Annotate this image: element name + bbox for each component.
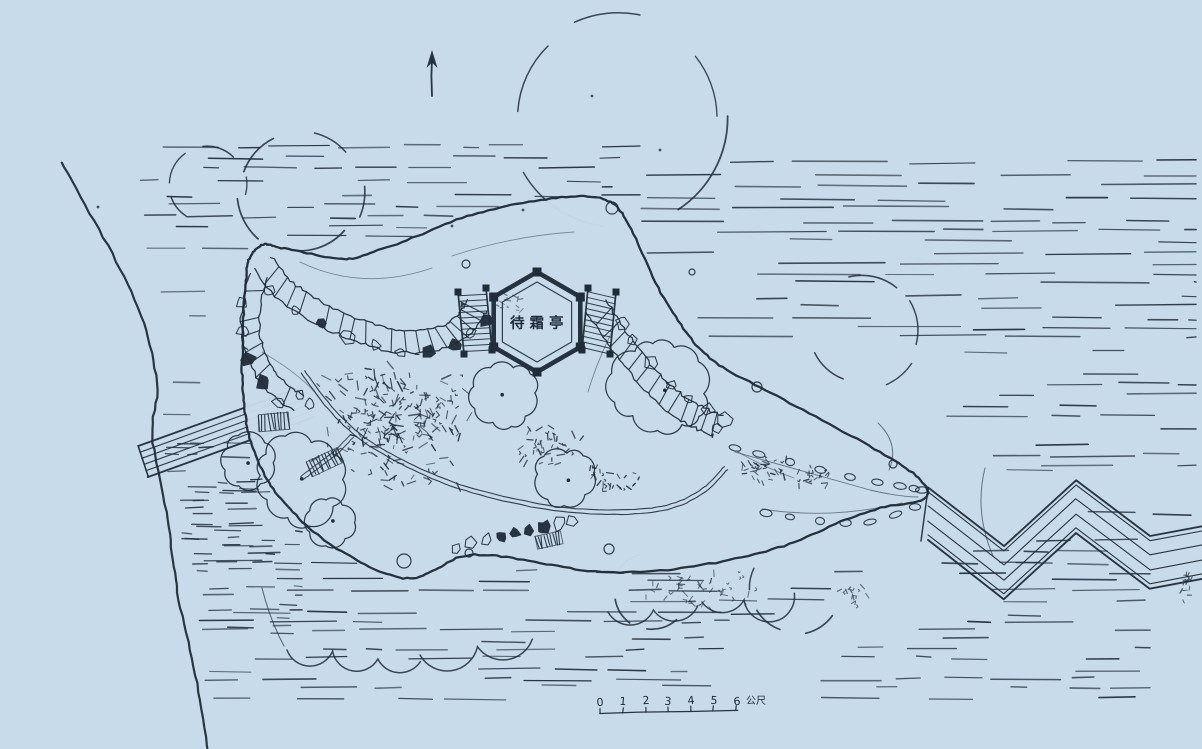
- dashed-canopy-arc: [169, 153, 185, 183]
- water-dash: [945, 677, 982, 678]
- shrub-stroke: [742, 464, 743, 471]
- water-dash: [669, 591, 716, 592]
- scale-unit-label: 公尺: [746, 695, 766, 707]
- water-dash: [1004, 209, 1053, 210]
- ink-dot: [451, 225, 454, 228]
- shrub-tick: [743, 576, 744, 578]
- water-dash: [781, 199, 855, 200]
- shrub-stroke: [393, 446, 394, 449]
- shrub-stroke: [701, 604, 702, 607]
- water-dash: [1051, 456, 1135, 457]
- scale-bar-tick: [623, 708, 624, 713]
- scale-bar-line: [600, 710, 738, 713]
- pavilion-label: 待霜亭: [510, 314, 569, 332]
- water-dash: [986, 273, 1055, 274]
- water-dash: [294, 586, 302, 587]
- water-dash: [375, 687, 401, 688]
- water-dash: [161, 291, 205, 292]
- water-dash: [301, 687, 356, 688]
- zigzag-parapet-line: [928, 480, 1202, 546]
- dashed-canopy-arc: [815, 353, 843, 379]
- water-dash: [965, 352, 1007, 353]
- dashed-canopy-arc: [285, 231, 345, 251]
- shrub-stroke: [852, 594, 853, 599]
- water-dash: [367, 649, 382, 650]
- shrub-stroke: [1180, 589, 1182, 593]
- dashed-canopy-arc: [886, 364, 911, 385]
- garden-plan-sheet: 待霜亭 0 1 2 3 4 5 6 公尺: [0, 0, 1202, 749]
- water-dash: [1046, 254, 1131, 255]
- water-dash: [1178, 465, 1196, 466]
- water-dash: [330, 225, 383, 226]
- water-dash: [251, 609, 279, 610]
- water-dash: [479, 668, 540, 669]
- water-dash: [204, 167, 219, 168]
- water-dash: [822, 698, 879, 699]
- water-dash: [419, 590, 473, 591]
- water-dash: [210, 671, 251, 672]
- water-dash: [900, 335, 986, 336]
- water-dash: [358, 180, 389, 181]
- canopy-scallop: [420, 639, 532, 671]
- shrub-stroke: [384, 431, 385, 438]
- water-dash: [1127, 393, 1196, 394]
- canopy-scallop: [287, 650, 420, 673]
- shrub-stroke: [1189, 586, 1190, 590]
- water-dash: [296, 531, 302, 532]
- water-dash: [209, 158, 263, 159]
- water-dash: [482, 642, 525, 643]
- tree-trunk-dot: [331, 519, 335, 523]
- shoreline: [62, 163, 208, 749]
- shrub-tick: [727, 583, 729, 585]
- scale-bar-labels: 0 1 2 3 4 5 6 公尺: [596, 694, 766, 710]
- scale-tick-5: 5: [710, 694, 718, 707]
- shrub-stroke: [590, 466, 591, 471]
- water-dash: [353, 622, 382, 623]
- water-dash: [682, 622, 700, 623]
- water-dash: [173, 382, 199, 383]
- shrub-tick: [755, 463, 757, 464]
- shrub-stroke: [664, 596, 667, 600]
- water-dash: [735, 186, 800, 187]
- shrub-stroke: [657, 584, 659, 588]
- water-dash: [141, 180, 158, 181]
- dashed-canopy-arc: [695, 56, 717, 116]
- shrub-tick: [669, 592, 673, 594]
- water-dash: [1005, 336, 1079, 337]
- water-dash: [306, 657, 347, 658]
- water-dash: [485, 678, 511, 679]
- water-dash: [801, 305, 838, 306]
- stepping-stone: [863, 518, 876, 526]
- water-dash: [203, 629, 248, 630]
- shrub-stroke: [837, 589, 841, 591]
- dashed-canopy-arc: [615, 599, 630, 623]
- water-dash: [648, 198, 715, 199]
- approach-post: [489, 347, 496, 354]
- water-dash: [608, 670, 646, 671]
- north-arrow-shaft: [431, 58, 432, 96]
- tree-trunk-dot: [567, 478, 571, 482]
- water-dash: [266, 554, 274, 555]
- water-dash: [228, 627, 254, 628]
- water-dash: [223, 457, 250, 458]
- shrub-stroke: [1183, 600, 1184, 603]
- water-dash: [512, 631, 555, 632]
- contour-line: [981, 468, 993, 556]
- water-dash: [182, 539, 207, 540]
- shrub-stroke: [381, 480, 388, 481]
- water-dash: [731, 161, 774, 162]
- stepping-stone: [909, 504, 920, 511]
- shrub-tick: [844, 593, 845, 594]
- water-dash: [1041, 282, 1149, 283]
- water-dash: [440, 629, 502, 630]
- water-dash: [218, 482, 227, 483]
- water-dash: [220, 493, 233, 494]
- shrub-tick: [851, 588, 854, 590]
- ink-dot: [659, 149, 662, 152]
- dashed-canopy-arc: [518, 46, 548, 111]
- water-dash: [197, 526, 221, 527]
- shore-rock: [689, 269, 695, 275]
- pavilion-post: [489, 293, 498, 302]
- water-dash: [979, 298, 1018, 299]
- water-dash: [720, 600, 757, 601]
- water-dash: [229, 523, 253, 524]
- water-dash: [244, 167, 296, 168]
- water-dash: [242, 492, 270, 493]
- water-dash: [234, 613, 290, 614]
- rockery-step-line: [391, 329, 392, 353]
- tree-trunk-dot: [500, 393, 504, 397]
- dashed-canopy-arc: [360, 186, 365, 217]
- water-dash: [243, 217, 276, 218]
- water-dash: [647, 252, 713, 253]
- water-dash: [896, 678, 920, 679]
- dashed-canopy-arc: [246, 177, 247, 195]
- shrub-stroke: [860, 585, 864, 589]
- water-dash: [269, 145, 330, 146]
- water-dash: [186, 507, 204, 508]
- water-dash: [1125, 328, 1196, 329]
- water-dash: [308, 611, 347, 612]
- approach-post: [607, 351, 614, 358]
- water-dash: [250, 546, 272, 547]
- water-dash: [1153, 514, 1191, 515]
- scale-tick-3: 3: [664, 695, 672, 709]
- water-dash: [910, 163, 975, 164]
- north-arrow-icon: [427, 50, 438, 96]
- water-dash: [366, 236, 412, 237]
- water-dash: [586, 656, 623, 657]
- water-dash: [1036, 444, 1088, 445]
- water-dash: [1052, 415, 1080, 416]
- water-dash: [629, 589, 661, 590]
- water-dash: [424, 215, 452, 216]
- water-dash: [1182, 296, 1196, 297]
- water-dash: [209, 610, 232, 611]
- water-dash: [647, 175, 721, 176]
- water-dash: [169, 203, 219, 204]
- shrub-tick: [669, 576, 671, 580]
- water-dash: [1111, 688, 1150, 689]
- water-dash: [943, 638, 988, 639]
- tree-trunk-dot: [246, 461, 250, 465]
- water-dash: [251, 479, 262, 480]
- water-dash: [228, 537, 238, 538]
- water-dash: [277, 618, 289, 619]
- shrub-stroke: [365, 369, 371, 370]
- water-dash: [796, 281, 874, 282]
- water-dash: [1117, 600, 1145, 601]
- water-dash: [228, 509, 256, 510]
- scale-tick-1: 1: [619, 695, 627, 708]
- water-dash: [270, 621, 336, 622]
- water-dash: [409, 658, 471, 659]
- water-dash: [935, 253, 1024, 254]
- water-dash: [906, 295, 961, 296]
- water-dash: [1187, 337, 1196, 338]
- dashed-canopy-arc: [237, 199, 258, 239]
- water-dash: [1154, 274, 1196, 275]
- water-dash: [1131, 198, 1196, 199]
- shrub-tick: [738, 572, 740, 573]
- shrub-stroke: [397, 415, 401, 416]
- water-dash: [604, 621, 662, 622]
- pavilion-post: [576, 293, 585, 302]
- water-dash: [685, 637, 703, 638]
- shrub-tick: [732, 597, 734, 601]
- water-dash: [539, 167, 594, 168]
- water-dash: [1053, 317, 1102, 318]
- water-dash: [1072, 677, 1093, 678]
- zigzag-parapet-line: [928, 499, 1202, 565]
- dashed-canopy-arc: [910, 301, 918, 345]
- scale-tick-2: 2: [642, 694, 650, 707]
- approach-post: [455, 289, 462, 296]
- water-dash: [311, 562, 356, 563]
- water-dash: [893, 220, 983, 221]
- water-dash: [878, 200, 945, 201]
- water-dash: [790, 239, 831, 240]
- water-dash: [779, 263, 885, 264]
- water-dash: [816, 175, 901, 176]
- water-dash: [542, 685, 576, 686]
- shrub-stroke: [752, 467, 755, 468]
- water-dash: [197, 571, 207, 572]
- water-dash: [526, 620, 591, 621]
- water-dash: [187, 216, 232, 217]
- dashed-canopy-arc: [806, 616, 833, 634]
- water-dash: [567, 181, 600, 182]
- shrub-stroke: [413, 436, 414, 440]
- water-dash: [1042, 465, 1113, 466]
- water-dash: [844, 206, 949, 207]
- water-dash: [617, 679, 681, 680]
- shrub-stroke: [610, 484, 611, 490]
- water-dash: [276, 569, 299, 570]
- shrub-tick: [624, 488, 625, 490]
- ink-dot: [522, 209, 525, 212]
- water-dash: [555, 669, 597, 670]
- water-dash: [626, 649, 644, 650]
- water-dash: [1101, 415, 1155, 416]
- shrub-stroke: [742, 473, 747, 474]
- water-dash: [360, 629, 426, 630]
- water-dash: [1009, 615, 1041, 616]
- shrub-stroke: [1188, 573, 1189, 576]
- ink-dot: [97, 206, 100, 209]
- rockery-step-line: [246, 290, 264, 291]
- water-dash: [663, 685, 711, 686]
- water-dash: [280, 604, 297, 605]
- water-dash: [1159, 242, 1196, 243]
- plan-drawing: 待霜亭 0 1 2 3 4 5 6 公尺: [0, 0, 1202, 749]
- stepping-stone: [888, 510, 902, 520]
- shrub-stroke: [853, 596, 854, 600]
- water-dash: [1102, 184, 1196, 185]
- water-dash: [444, 699, 505, 700]
- water-dash: [215, 530, 241, 531]
- shrub-stroke: [689, 601, 696, 602]
- water-dash: [1099, 229, 1160, 230]
- water-dash: [757, 298, 787, 299]
- contour-line: [262, 588, 284, 646]
- water-dash: [1007, 470, 1053, 471]
- water-dash: [758, 274, 860, 275]
- water-dash: [399, 698, 433, 699]
- water-dash: [253, 562, 272, 563]
- approach-post: [585, 285, 592, 292]
- water-dash: [517, 570, 537, 571]
- approach-post: [613, 289, 620, 296]
- water-dash: [952, 659, 987, 660]
- shore-line: [62, 163, 208, 749]
- shrub-stroke: [846, 589, 848, 593]
- shrub-stroke: [821, 483, 827, 484]
- water-dash: [818, 185, 906, 186]
- water-dash: [271, 633, 293, 634]
- water-dash: [991, 221, 1039, 222]
- shrub-stroke: [843, 591, 845, 593]
- shrub-stroke: [425, 395, 426, 400]
- dashed-canopy-arc: [678, 116, 727, 209]
- water-dash: [275, 563, 302, 564]
- water-dash: [1099, 697, 1135, 698]
- scale-tick-6: 6: [733, 695, 741, 708]
- water-dash: [916, 656, 931, 657]
- water-dash: [1037, 540, 1071, 541]
- water-dash: [600, 158, 619, 159]
- island-shoreline: [241, 196, 928, 579]
- approach-post: [579, 347, 586, 354]
- shrub-stroke: [409, 373, 410, 378]
- shrub-tick: [856, 605, 858, 608]
- water-dash: [993, 231, 1078, 232]
- shrub-stroke: [557, 437, 558, 442]
- water-dash: [968, 621, 991, 622]
- shrub-stroke: [855, 602, 856, 605]
- shrub-tick: [858, 589, 859, 591]
- approach-post: [483, 285, 490, 292]
- scale-tick-4: 4: [687, 694, 695, 708]
- water-dash: [718, 232, 827, 233]
- water-dash: [731, 614, 774, 615]
- water-dash: [1119, 382, 1169, 383]
- shrub-tick: [755, 588, 757, 591]
- water-dash: [1053, 579, 1117, 580]
- water-dash: [182, 533, 192, 534]
- water-dash: [768, 599, 824, 600]
- water-dash: [195, 492, 209, 493]
- water-dash: [1060, 405, 1096, 406]
- water-dash: [324, 649, 346, 650]
- pavilion-post: [533, 368, 542, 377]
- water-dash: [204, 560, 262, 561]
- shrub-stroke: [683, 591, 688, 596]
- approach-post: [461, 351, 468, 358]
- water-dash: [210, 588, 228, 589]
- shrub-tick: [730, 588, 732, 590]
- shrub-stroke: [638, 477, 639, 480]
- dashed-canopy-arc: [171, 197, 186, 216]
- scale-tick-0: 0: [596, 696, 604, 710]
- water-dash: [1127, 221, 1169, 222]
- water-dash: [168, 471, 185, 472]
- water-dash: [1001, 175, 1070, 176]
- ink-dot: [591, 95, 594, 98]
- water-dash: [991, 589, 1055, 590]
- dashed-canopy-arc: [315, 133, 346, 152]
- shrub-stroke: [866, 593, 869, 598]
- water-dash: [925, 240, 1011, 241]
- water-dash: [603, 146, 641, 147]
- dashed-canopy-arc: [749, 568, 754, 589]
- shrub-stroke: [748, 591, 749, 598]
- island-outline: [241, 196, 928, 579]
- shrub-tick: [404, 446, 405, 448]
- water-dash: [1073, 590, 1140, 591]
- shrub-stroke: [527, 440, 533, 441]
- water-dash: [1116, 304, 1196, 305]
- dashed-canopy-arc: [575, 13, 640, 22]
- water-dash: [1043, 328, 1110, 329]
- water-dash: [263, 679, 316, 680]
- water-dash: [1068, 564, 1108, 565]
- shrub-stroke: [519, 299, 523, 300]
- shrub-tick: [1183, 580, 1185, 581]
- water-dash: [248, 552, 279, 553]
- water-dash: [339, 147, 390, 148]
- shrub-tick: [740, 577, 741, 579]
- water-dash: [396, 207, 417, 208]
- shrub-stroke: [678, 587, 680, 590]
- pavilion-post: [533, 268, 542, 277]
